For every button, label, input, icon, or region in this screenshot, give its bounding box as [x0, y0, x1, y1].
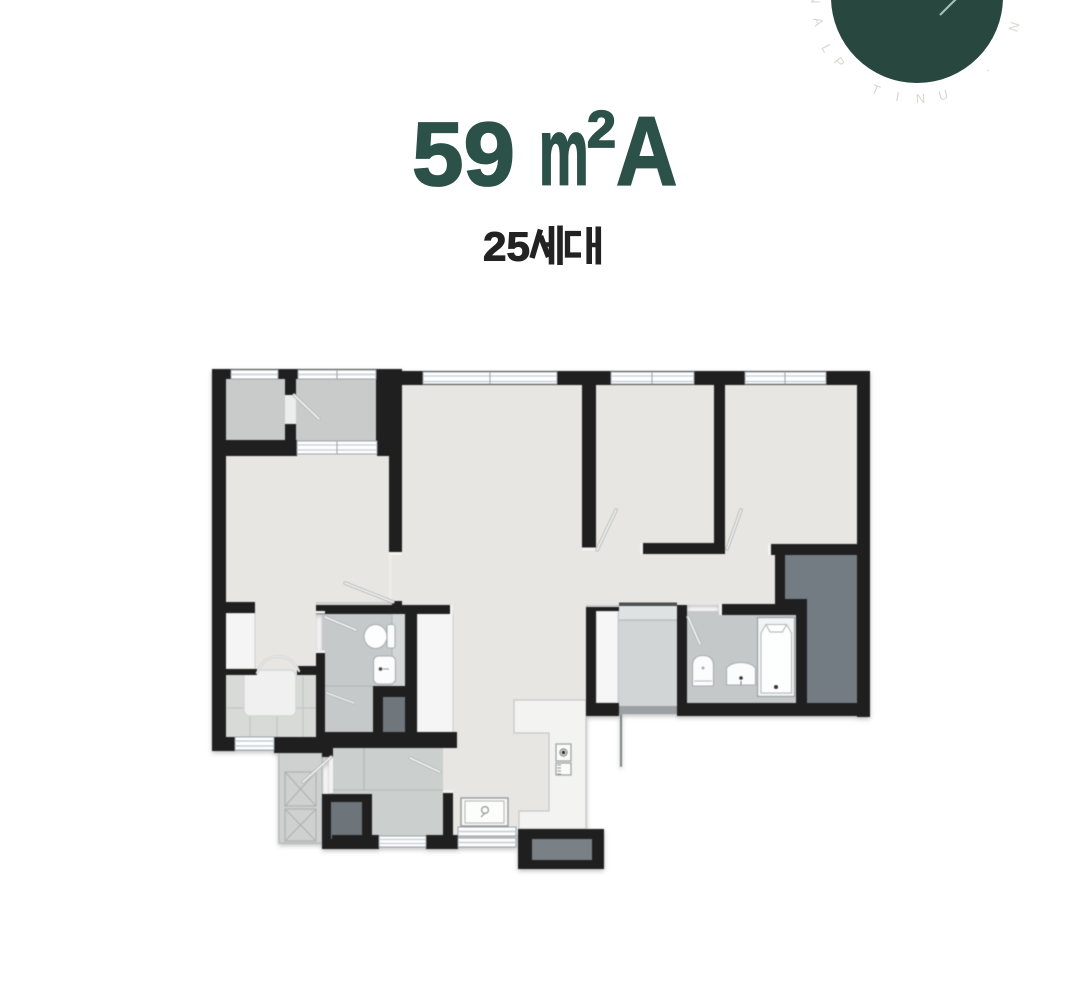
svg-text:P: P: [831, 54, 848, 70]
svg-text:T: T: [869, 81, 882, 98]
svg-text:N: N: [1006, 20, 1023, 33]
svg-text:N: N: [916, 91, 926, 106]
svg-text:2: 2: [587, 101, 616, 159]
svg-text:U: U: [937, 87, 950, 104]
svg-text:A: A: [616, 98, 677, 205]
svg-text:N: N: [808, 0, 823, 4]
svg-text:m: m: [539, 98, 589, 205]
svg-text:·: ·: [981, 63, 995, 77]
svg-text:59: 59: [412, 105, 515, 205]
svg-text:A: A: [810, 16, 827, 28]
svg-text:L: L: [818, 42, 835, 55]
svg-text:I: I: [894, 89, 900, 104]
svg-text:25: 25: [483, 224, 530, 270]
